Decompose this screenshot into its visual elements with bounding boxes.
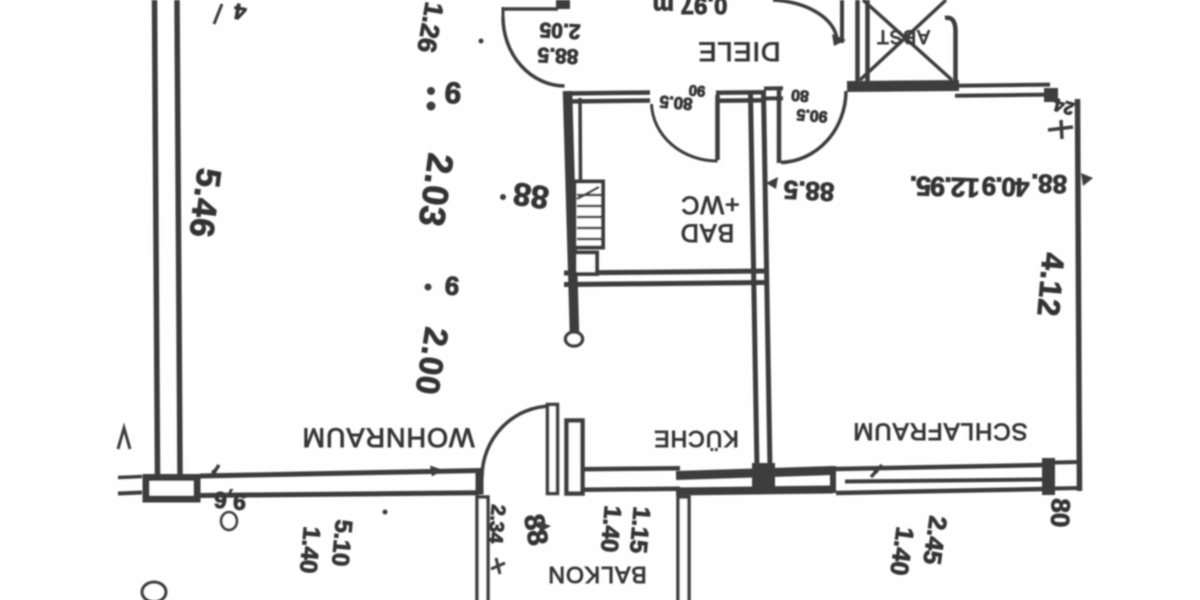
svg-text:9: 9 [444, 75, 463, 109]
svg-text:80: 80 [790, 86, 809, 104]
svg-text:0.97 m: 0.97 m [653, 0, 728, 19]
svg-text:88.5: 88.5 [537, 43, 579, 68]
svg-text:SCHLAFRAUM: SCHLAFRAUM [852, 418, 1027, 445]
svg-text:+WC: +WC [680, 190, 739, 218]
svg-text:KÜCHE: KÜCHE [653, 426, 739, 452]
svg-text:2.05: 2.05 [539, 18, 581, 43]
svg-text:DIELE: DIELE [697, 37, 780, 67]
svg-text:9: 9 [444, 270, 461, 301]
svg-text:88: 88 [511, 176, 551, 217]
svg-text:80: 80 [1045, 498, 1076, 528]
svg-text:88: 88 [518, 512, 554, 548]
svg-text:40.9: 40.9 [982, 171, 1030, 203]
svg-text:ABST: ABST [876, 25, 930, 46]
svg-text:1.40: 1.40 [294, 525, 325, 574]
svg-text:2.34: 2.34 [484, 504, 509, 546]
svg-text:1.40: 1.40 [595, 504, 626, 553]
svg-text:90: 90 [688, 81, 706, 99]
svg-text:BAD: BAD [680, 218, 734, 246]
svg-text:WOHNRAUM: WOHNRAUM [302, 423, 475, 453]
svg-text:1.15: 1.15 [624, 505, 655, 554]
svg-text:80.5: 80.5 [659, 92, 694, 114]
svg-text:5.10: 5.10 [326, 518, 357, 567]
svg-text:88.5: 88.5 [783, 175, 835, 208]
svg-text:BALKON: BALKON [547, 562, 646, 588]
svg-text:12.95.: 12.95. [910, 170, 980, 202]
svg-text:90.5: 90.5 [796, 105, 829, 125]
svg-text:88.: 88. [1030, 168, 1067, 199]
svg-text:4.12: 4.12 [1030, 251, 1070, 318]
